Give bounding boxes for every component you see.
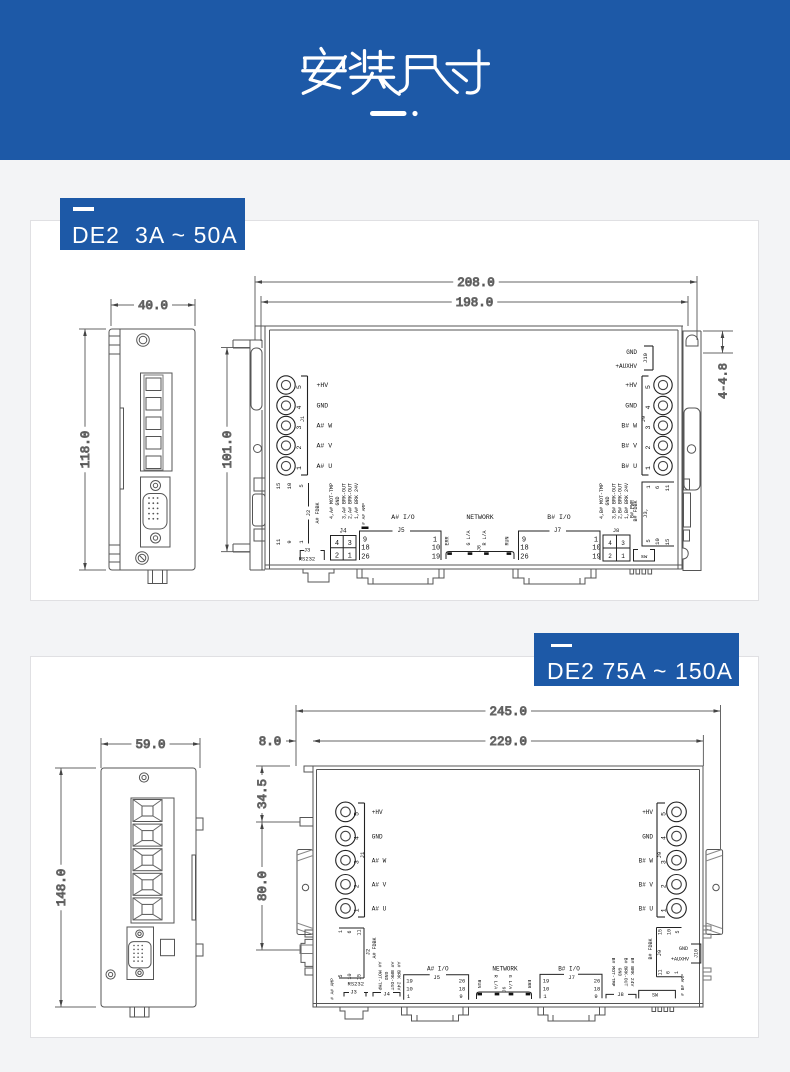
svg-text:B# W: B# W [621, 423, 637, 430]
svg-text:1: 1 [645, 485, 652, 489]
svg-text:5: 5 [298, 484, 305, 487]
svg-text:19: 19 [592, 554, 600, 562]
svg-text:3: 3 [661, 860, 668, 864]
svg-text:ERR: ERR [526, 980, 532, 989]
svg-text:4: 4 [661, 836, 668, 840]
svg-text:9: 9 [459, 993, 462, 1000]
svg-text:+HV: +HV [372, 809, 383, 816]
svg-text:GND: GND [335, 496, 341, 505]
svg-text:10: 10 [543, 985, 550, 992]
svg-text:9: 9 [522, 537, 526, 545]
svg-text:ERR: ERR [445, 536, 451, 545]
svg-text:2: 2 [645, 445, 652, 449]
svg-text:8.0: 8.0 [259, 735, 282, 749]
svg-text:J10: J10 [642, 353, 649, 363]
svg-text:sw: sw [641, 553, 648, 560]
svg-text:2,A# BRK-OUT: 2,A# BRK-OUT [348, 483, 354, 519]
svg-text:+HV: +HV [625, 382, 637, 389]
svg-text:R L/A: R L/A [482, 530, 488, 545]
svg-text:B# U: B# U [639, 906, 654, 913]
svg-text:J1: J1 [359, 851, 366, 858]
svg-text:1: 1 [338, 930, 344, 933]
svg-text:+AUXHV: +AUXHV [671, 957, 689, 963]
svg-text:B# MOT-TMP: B# MOT-TMP [610, 958, 616, 987]
svg-text:19: 19 [432, 554, 440, 562]
svg-text:3: 3 [621, 540, 625, 547]
svg-text:NETWORK: NETWORK [492, 966, 518, 973]
svg-text:A# BRK 24V: A# BRK 24V [395, 962, 401, 991]
svg-text:A# BRK-OUT: A# BRK-OUT [389, 962, 395, 991]
svg-text:A# W: A# W [372, 857, 387, 864]
svg-text:5: 5 [338, 974, 344, 977]
svg-text:3: 3 [354, 860, 361, 864]
svg-text:R L/A: R L/A [493, 975, 499, 990]
svg-text:+HV: +HV [642, 809, 653, 816]
svg-text:J1: J1 [300, 416, 306, 422]
svg-text:4: 4 [354, 836, 361, 840]
svg-text:GND: GND [605, 496, 611, 505]
svg-text:1: 1 [543, 993, 547, 1000]
svg-text:3: 3 [296, 425, 303, 429]
svg-text:10: 10 [347, 973, 353, 979]
svg-text:18: 18 [520, 545, 528, 553]
svg-text:1: 1 [594, 537, 598, 545]
svg-text:A# I/O: A# I/O [391, 514, 415, 521]
svg-text:2: 2 [608, 553, 612, 560]
svg-text:229.0: 229.0 [489, 735, 527, 749]
svg-text:B# BRK-OUT: B# BRK-OUT [623, 958, 629, 987]
svg-text:# A# AMP: # A# AMP [330, 978, 336, 1000]
svg-text:3,A# BRK-OUT: 3,A# BRK-OUT [341, 483, 347, 519]
svg-text:2: 2 [335, 553, 339, 561]
svg-text:18: 18 [594, 985, 601, 992]
svg-text:A# W: A# W [317, 423, 333, 430]
svg-text:4-4.8: 4-4.8 [717, 363, 731, 399]
svg-text:208.0: 208.0 [457, 276, 495, 290]
svg-text:80.0: 80.0 [256, 871, 270, 901]
svg-text:B# I/O: B# I/O [547, 514, 571, 521]
svg-text:J3: J3 [350, 989, 357, 996]
svg-text:A# I/O: A# I/O [427, 966, 449, 973]
svg-text:10: 10 [432, 545, 440, 553]
svg-text:5: 5 [661, 812, 668, 816]
svg-text:1: 1 [674, 971, 680, 974]
svg-text:J8: J8 [617, 991, 624, 998]
svg-text:26: 26 [361, 554, 369, 562]
svg-text:3: 3 [348, 540, 352, 548]
svg-text:34.5: 34.5 [256, 779, 270, 809]
svg-text:A# U: A# U [317, 463, 333, 470]
svg-text:A# V: A# V [372, 882, 387, 889]
svg-text:J5: J5 [397, 527, 405, 534]
svg-text:NETWORK: NETWORK [466, 514, 493, 521]
svg-text:1: 1 [433, 537, 437, 545]
svg-text:1: 1 [298, 540, 305, 544]
svg-text:+HV: +HV [317, 382, 329, 389]
svg-text:4,A# MOT-TMP: 4,A# MOT-TMP [329, 483, 335, 519]
svg-text:1,A# BRK 24V: 1,A# BRK 24V [354, 483, 360, 519]
svg-text:RS232: RS232 [299, 556, 316, 563]
svg-text:40.0: 40.0 [138, 299, 168, 313]
svg-text:15: 15 [664, 539, 671, 546]
svg-text:G L/A: G L/A [507, 975, 513, 990]
svg-text:J7: J7 [568, 974, 575, 981]
svg-text:9: 9 [286, 540, 293, 543]
svg-text:J9: J9 [656, 852, 663, 859]
svg-text:J7: J7 [554, 527, 562, 534]
svg-text:245.0: 245.0 [489, 705, 527, 719]
svg-text:11: 11 [664, 484, 671, 491]
svg-text:18: 18 [361, 545, 369, 553]
svg-text:J2: J2 [305, 510, 312, 517]
svg-text:5: 5 [675, 930, 681, 933]
svg-text:10: 10 [667, 929, 673, 935]
svg-text:B# FDBK: B# FDBK [648, 938, 654, 959]
svg-text:B# I/O: B# I/O [558, 966, 580, 973]
svg-text:15: 15 [658, 929, 664, 935]
svg-text:2: 2 [296, 445, 303, 449]
svg-text:19: 19 [406, 978, 413, 985]
svg-text:B# V: B# V [621, 443, 637, 450]
svg-text:26: 26 [520, 554, 528, 562]
svg-text:10: 10 [286, 483, 293, 490]
svg-text:B# FDBK: B# FDBK [633, 500, 639, 521]
svg-text:26: 26 [594, 978, 601, 985]
svg-text:3,B# BRK-OUT: 3,B# BRK-OUT [611, 483, 617, 519]
svg-text:RS232: RS232 [348, 981, 365, 988]
svg-text:G L/A: G L/A [466, 530, 472, 545]
svg-text:11: 11 [275, 538, 282, 545]
svg-text:148.0: 148.0 [55, 869, 69, 907]
svg-text:19: 19 [543, 978, 550, 985]
svg-text:5: 5 [645, 539, 652, 542]
svg-text:6: 6 [666, 971, 672, 974]
svg-text:GND: GND [383, 972, 389, 981]
svg-text:26: 26 [459, 978, 466, 985]
svg-text:GND: GND [317, 403, 329, 410]
svg-text:J10: J10 [694, 949, 700, 958]
svg-text:J3,: J3, [642, 508, 649, 518]
svg-text:5: 5 [296, 385, 303, 389]
svg-text:J9: J9 [640, 416, 647, 423]
svg-text:1: 1 [354, 908, 361, 912]
svg-text:J5: J5 [433, 974, 440, 981]
svg-text:A# U: A# U [372, 906, 387, 913]
svg-text:RUN: RUN [476, 980, 482, 989]
svg-text:# A# AMP: # A# AMP [361, 503, 367, 525]
svg-text:1: 1 [661, 908, 668, 912]
svg-text:GND: GND [616, 968, 622, 977]
svg-text:10: 10 [592, 545, 600, 553]
svg-text:2: 2 [354, 884, 361, 888]
svg-text:GND: GND [372, 833, 383, 840]
svg-text:SW: SW [652, 993, 658, 999]
svg-text:A# FDBK: A# FDBK [315, 502, 321, 523]
svg-text:1: 1 [407, 993, 411, 1000]
svg-text:11: 11 [357, 929, 363, 935]
svg-text:5: 5 [645, 385, 652, 389]
svg-text:J8: J8 [613, 527, 620, 534]
svg-text:4: 4 [335, 540, 339, 548]
svg-text:4,B# MOT-TMP: 4,B# MOT-TMP [599, 483, 605, 519]
svg-text:GND: GND [679, 946, 688, 952]
svg-text:J3: J3 [304, 547, 311, 554]
svg-text:2,B# BRK-OUT: 2,B# BRK-OUT [618, 483, 624, 519]
svg-text:18: 18 [459, 985, 466, 992]
svg-text:1: 1 [645, 466, 652, 470]
svg-text:15: 15 [275, 483, 282, 490]
svg-text:198.0: 198.0 [456, 296, 494, 310]
svg-text:101.0: 101.0 [221, 431, 235, 469]
svg-text:B# U: B# U [621, 463, 637, 470]
svg-text:118.0: 118.0 [79, 431, 93, 469]
svg-text:A# V: A# V [317, 443, 333, 450]
svg-text:GND: GND [625, 403, 637, 410]
svg-text:59.0: 59.0 [135, 738, 165, 752]
svg-text:11: 11 [658, 969, 664, 975]
svg-text:B# W: B# W [639, 857, 654, 864]
svg-text:1: 1 [621, 553, 625, 560]
svg-text:10: 10 [406, 985, 413, 992]
svg-text:A# FDBK: A# FDBK [372, 937, 378, 958]
svg-text:J9: J9 [656, 950, 663, 957]
svg-text:B# V: B# V [639, 882, 654, 889]
svg-text:RUN: RUN [505, 536, 511, 545]
svg-text:5: 5 [354, 812, 361, 816]
svg-text:4: 4 [608, 540, 612, 547]
svg-text:B# BRK 24V: B# BRK 24V [629, 958, 635, 987]
svg-text:15: 15 [357, 974, 363, 980]
svg-text:4: 4 [296, 405, 303, 409]
svg-text:J4: J4 [383, 991, 390, 998]
svg-text:6: 6 [347, 930, 353, 933]
svg-text:J4: J4 [339, 528, 347, 535]
svg-text:J6: J6 [477, 545, 483, 551]
svg-text:GND: GND [642, 833, 653, 840]
svg-text:6: 6 [654, 486, 661, 489]
svg-text:3: 3 [645, 425, 652, 429]
svg-text:9: 9 [594, 993, 597, 1000]
svg-text:J2: J2 [365, 949, 372, 956]
svg-text:4: 4 [645, 405, 652, 409]
svg-text:1: 1 [296, 466, 303, 470]
svg-text:+AUXHV: +AUXHV [615, 363, 637, 370]
svg-text:1: 1 [348, 553, 352, 561]
svg-text:2: 2 [661, 884, 668, 888]
svg-text:9: 9 [363, 537, 367, 545]
svg-text:A# MOT-TMP: A# MOT-TMP [377, 962, 383, 991]
svg-text:GND: GND [626, 349, 637, 356]
svg-text:10: 10 [654, 538, 661, 545]
